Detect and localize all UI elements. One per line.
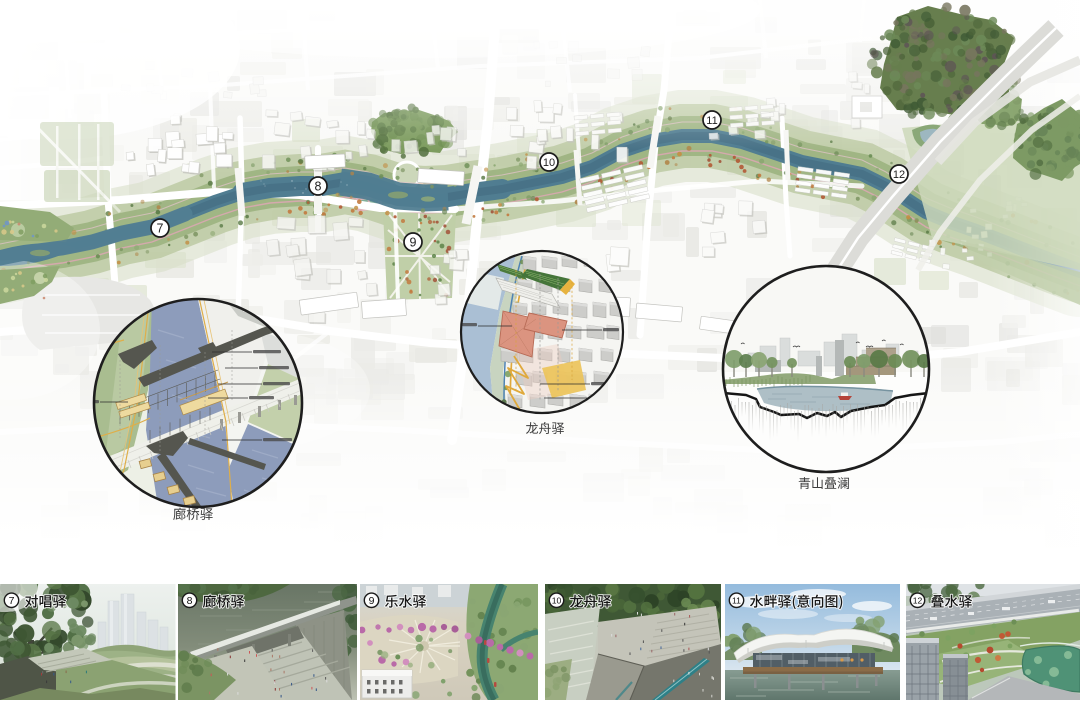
svg-text:12: 12 (913, 595, 923, 605)
svg-text:11: 11 (732, 595, 741, 605)
svg-text:10: 10 (552, 595, 562, 605)
svg-text:9: 9 (369, 595, 375, 607)
svg-text:8: 8 (187, 595, 193, 607)
svg-text:12: 12 (893, 169, 905, 181)
svg-text:10: 10 (543, 157, 555, 169)
svg-text:7: 7 (9, 595, 15, 607)
svg-text:9: 9 (410, 235, 417, 249)
svg-text:8: 8 (315, 179, 322, 193)
svg-text:11: 11 (706, 115, 717, 127)
svg-text:7: 7 (157, 221, 164, 235)
